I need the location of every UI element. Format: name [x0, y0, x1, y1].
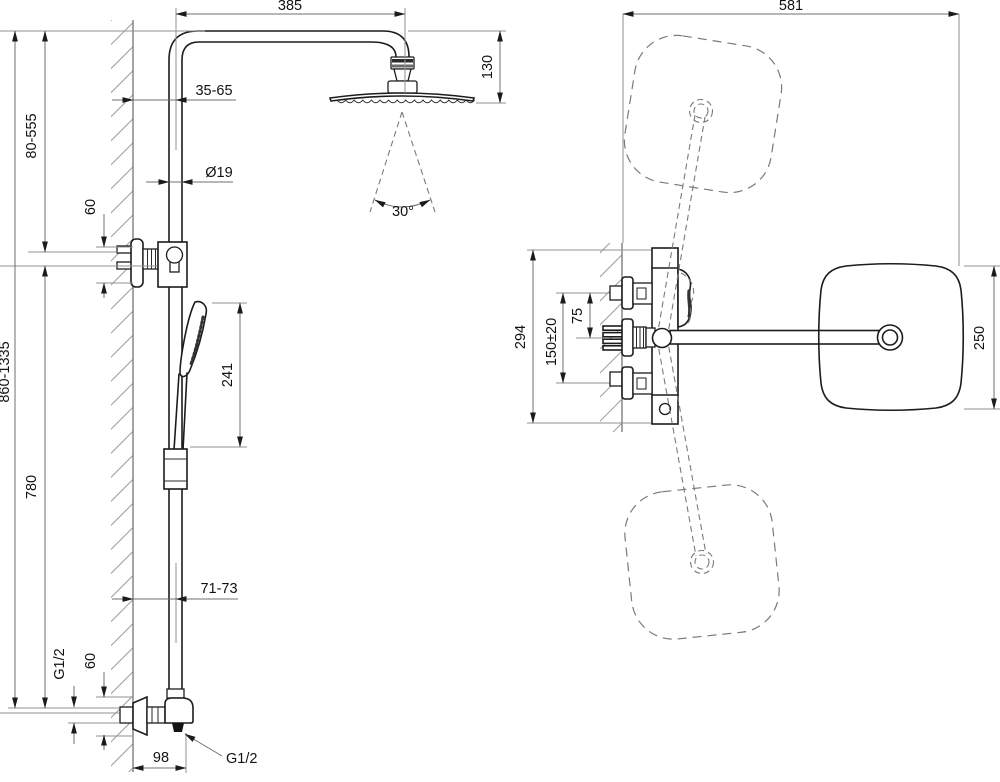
- wall-hatch-front: [111, 20, 133, 772]
- shower-arm-top-view: [653, 264, 964, 411]
- front-view: 385 130 35-65 Ø19 60 80-555 780 860-1335…: [0, 0, 506, 773]
- shower-system-drawing: 385 130 35-65 Ø19 60 80-555 780 860-1335…: [0, 0, 1000, 782]
- top-view: 581 294 150±20 75 250: [513, 0, 1000, 643]
- technical-drawing-page: 385 130 35-65 Ø19 60 80-555 780 860-1335…: [0, 0, 1000, 782]
- extension-lines-top: [527, 14, 1000, 423]
- ball-joint: [653, 329, 672, 348]
- connector-ring: [392, 65, 413, 68]
- dim-head-width: 250: [972, 326, 988, 350]
- dim-outlet-offset: 98: [153, 750, 169, 766]
- dim-outlet-thread: G1/2: [226, 751, 257, 767]
- overhead-shower: [330, 57, 475, 103]
- hand-shower-holder: [164, 449, 187, 489]
- dim-wall-clearance-top: 35-65: [195, 83, 232, 99]
- dim-wall-clearance-bottom: 71-73: [200, 581, 237, 597]
- dim-bracket-height-bottom: 60: [83, 653, 99, 669]
- valve-flange: [133, 697, 147, 735]
- dim-head-drop: 130: [480, 55, 496, 79]
- dim-bracket-height-top: 60: [83, 199, 99, 215]
- spray-cone: [370, 112, 435, 212]
- dim-inlet-thread: G1/2: [52, 648, 68, 679]
- dim-overall-height: 860-1335: [0, 341, 13, 402]
- dim-inlet-offset: 75: [570, 308, 586, 324]
- connector-ring: [392, 59, 413, 63]
- bracket-keyhole: [167, 247, 183, 263]
- mount-hole: [660, 404, 671, 415]
- dim-spray-angle: 30°: [392, 204, 414, 220]
- riser-pipe: [169, 31, 409, 697]
- hand-shower: [164, 302, 206, 489]
- outlet-leader-line: [185, 734, 222, 756]
- dim-inlet-spacing: 150±20: [544, 318, 560, 366]
- dim-hand-shower-length: 241: [220, 363, 236, 387]
- wall-inlet-pin: [120, 707, 133, 723]
- head-joint-inner: [883, 330, 898, 345]
- arm-bar: [670, 331, 879, 345]
- shower-head-disc: [330, 93, 474, 101]
- dim-pipe-diameter: Ø19: [205, 165, 232, 181]
- dim-overall-width: 581: [779, 0, 803, 14]
- nozzle-fringe: [337, 100, 475, 103]
- dim-upper-adjust-range: 80-555: [24, 113, 40, 158]
- extension-lines-front: [0, 8, 506, 773]
- handle-knurl: [689, 291, 690, 317]
- dim-column-length: 780: [24, 475, 40, 499]
- head-position-down-dashed: [621, 481, 784, 644]
- dim-arm-reach: 385: [278, 0, 302, 14]
- head-position-up-dashed: [618, 29, 787, 198]
- hose-outlet: [172, 723, 184, 732]
- valve-body: [165, 698, 193, 723]
- dim-overall-depth: 294: [513, 325, 529, 349]
